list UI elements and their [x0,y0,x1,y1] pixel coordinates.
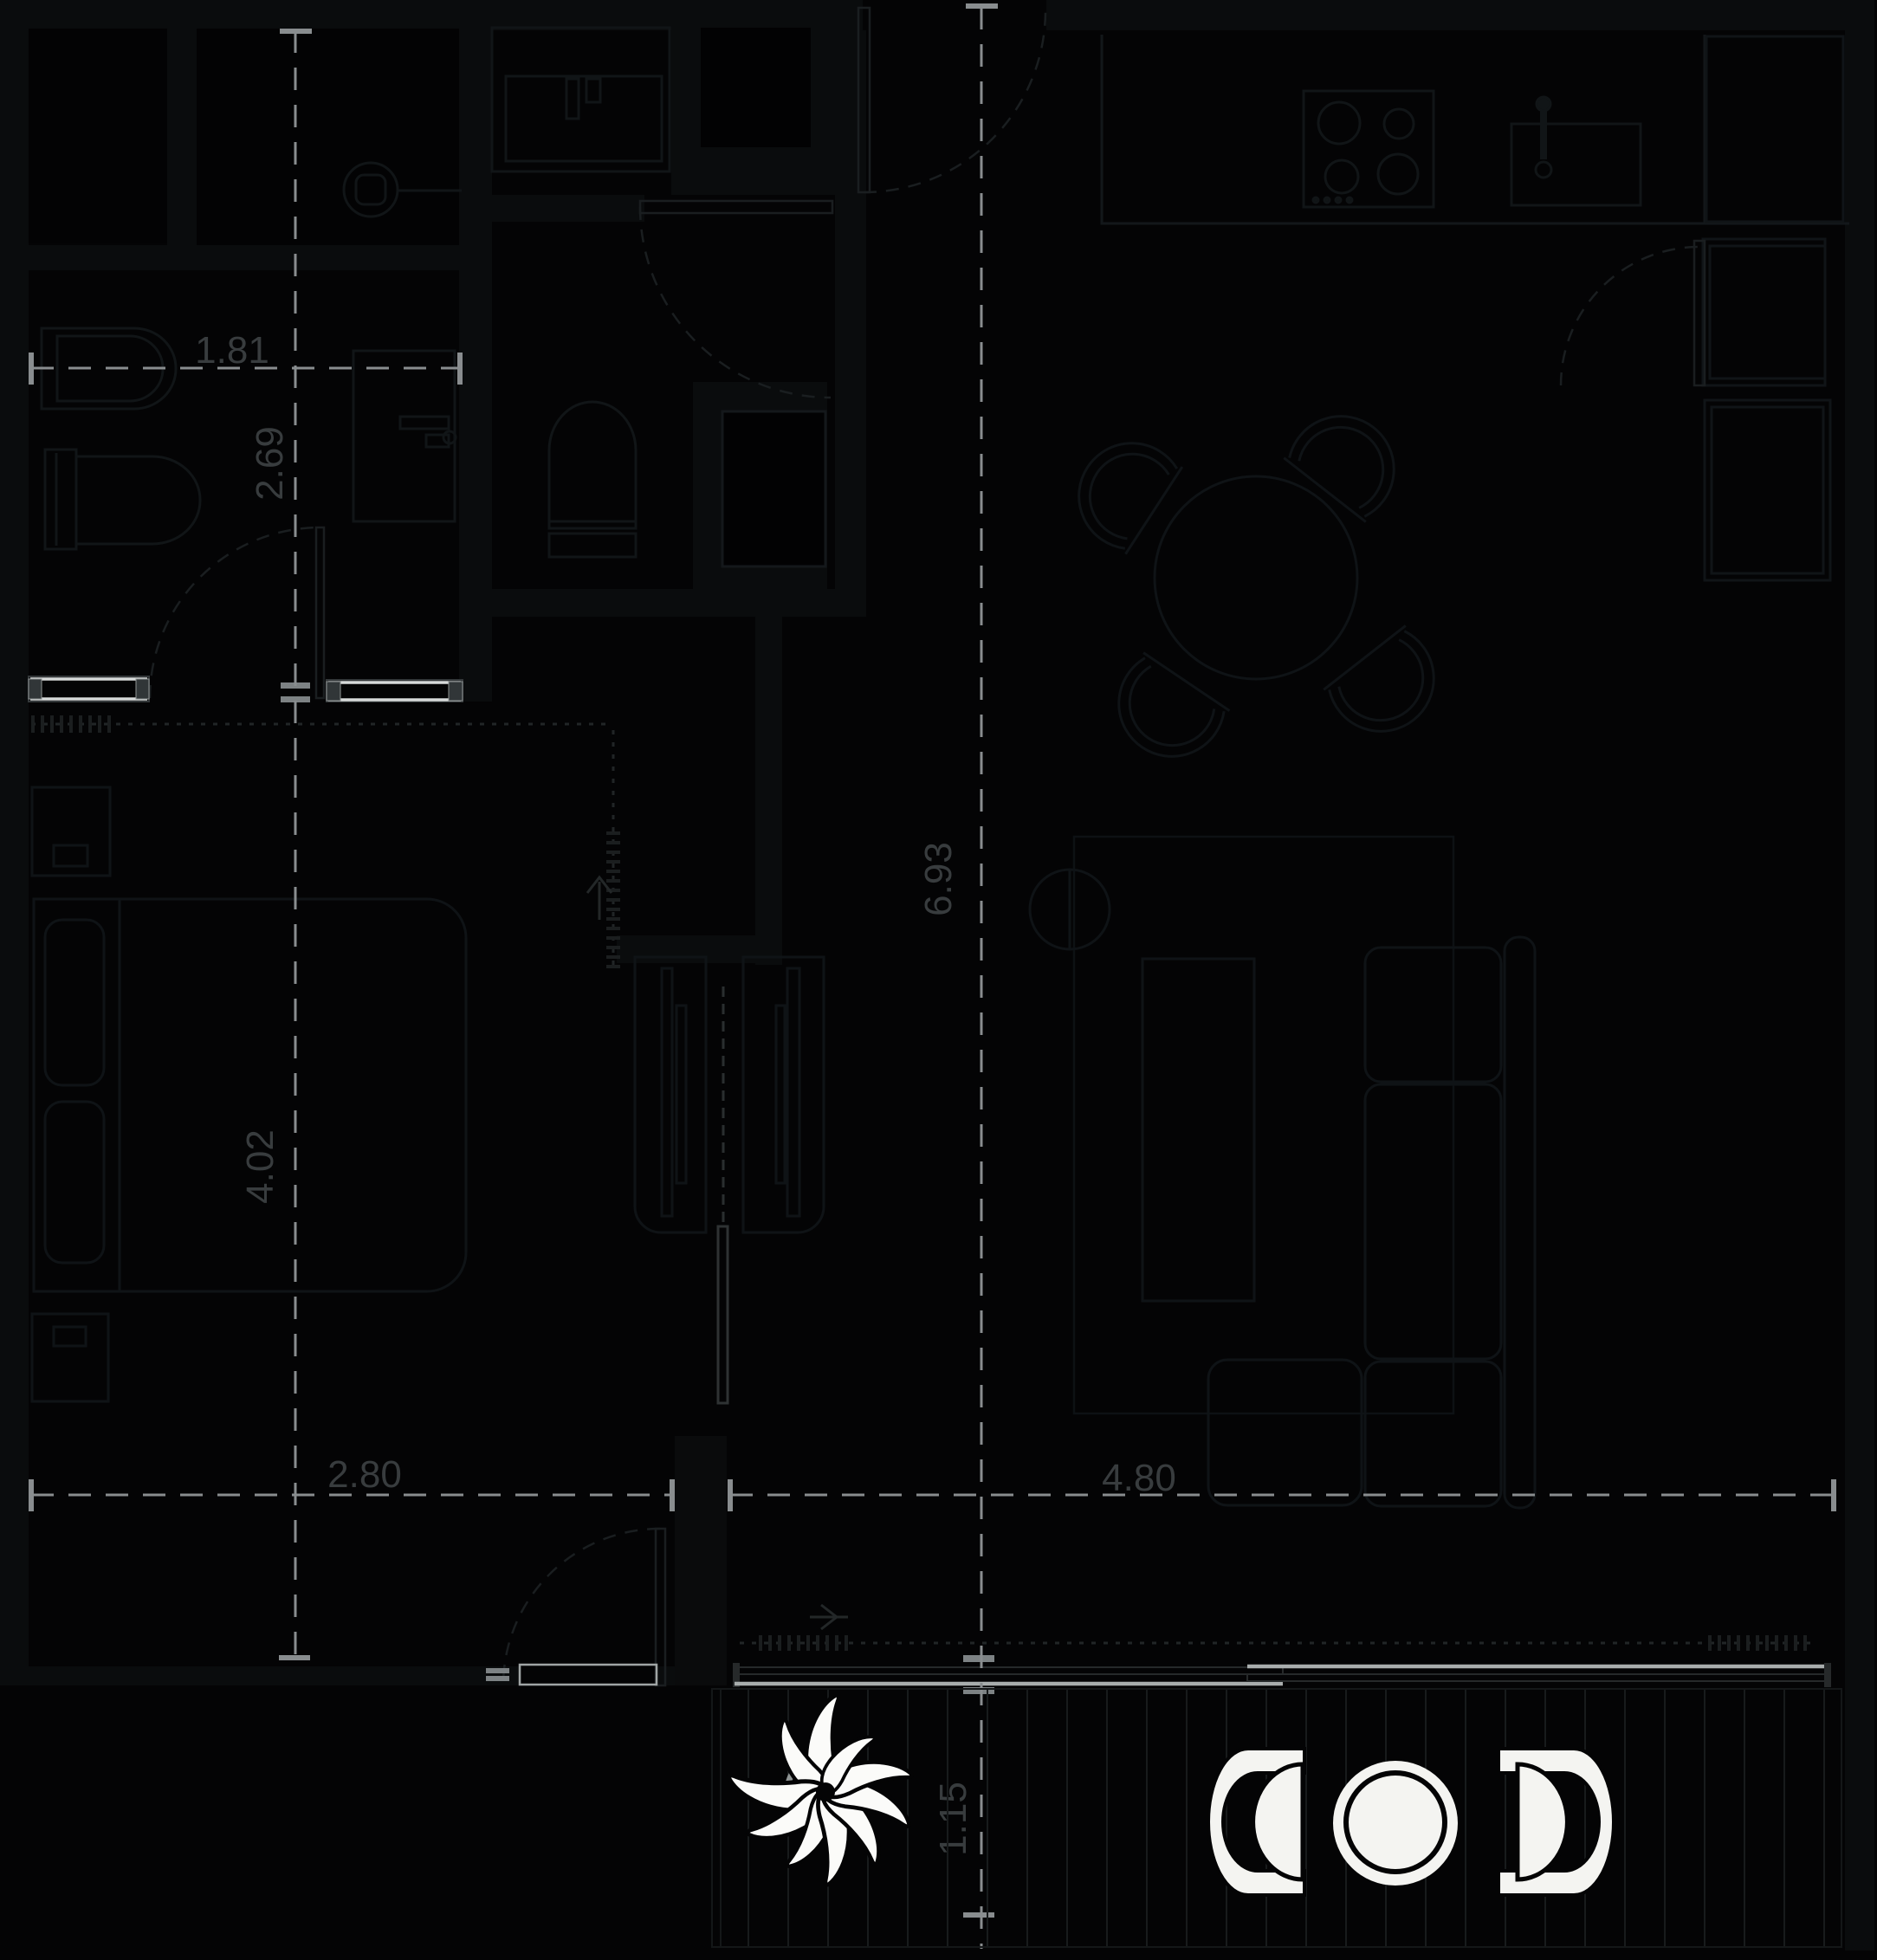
svg-text:1.81: 1.81 [195,329,269,372]
svg-text:6.93: 6.93 [917,842,960,916]
svg-text:4.02: 4.02 [239,1129,282,1204]
svg-text:1.15: 1.15 [932,1782,974,1856]
svg-text:4.80: 4.80 [1102,1457,1176,1499]
svg-text:2.69: 2.69 [249,426,291,501]
svg-text:2.80: 2.80 [327,1453,402,1496]
